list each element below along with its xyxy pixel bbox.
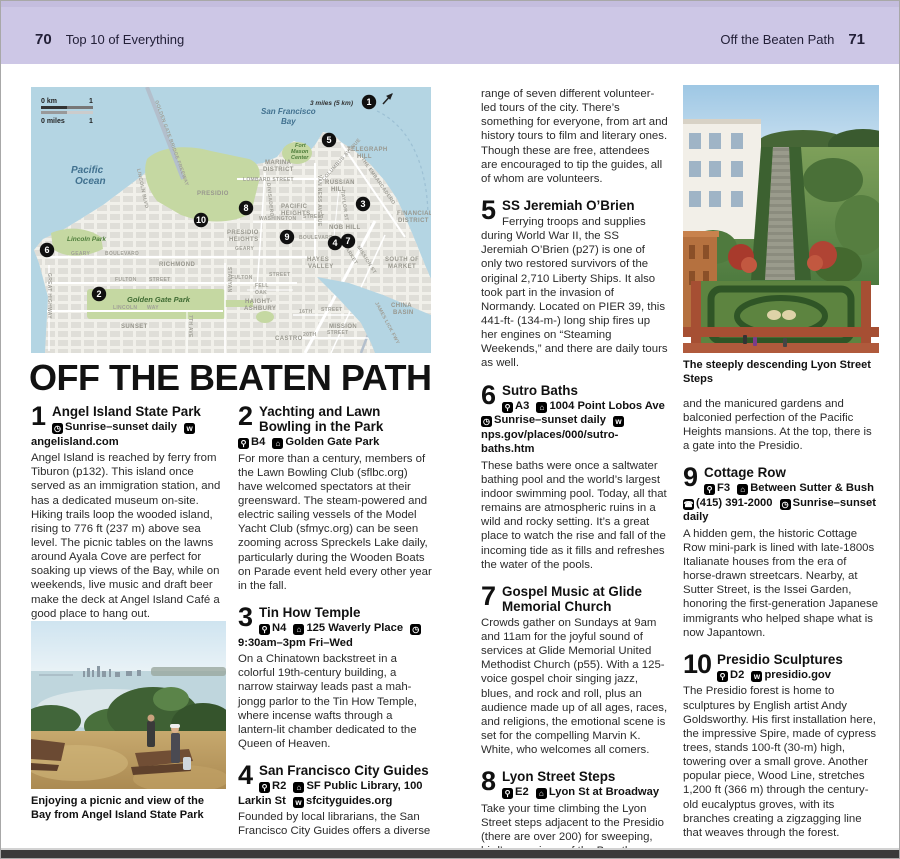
page-title: OFF THE BEATEN PATH <box>29 357 431 399</box>
map-label: 20TH <box>303 332 317 338</box>
entry-info: ⚲D2 wpresidio.gov <box>683 668 879 683</box>
map-label: DISTRICT <box>398 218 429 224</box>
entry-body: Angel Island is reached by ferry from Ti… <box>31 451 224 621</box>
entry-body: Founded by local librarians, the San Fra… <box>238 810 434 838</box>
map-pin-icon: ⚲ <box>502 402 513 413</box>
entry-body: These baths were once a saltwater bathin… <box>481 459 669 572</box>
entry-title: Lyon Street Steps <box>481 769 669 784</box>
left-header-title: Top 10 of Everything <box>66 32 185 47</box>
clock-icon: ◷ <box>780 499 791 510</box>
building-icon: ⌂ <box>293 782 304 793</box>
map-label: FINANCIAL <box>397 211 431 217</box>
map-label: Golden Gate Park <box>127 295 191 304</box>
picnic-photo <box>31 621 226 789</box>
entry-number: 3 <box>238 606 253 628</box>
map-marker-4: 4 <box>328 236 342 250</box>
entry-body: For more than a century, members of the … <box>238 452 434 593</box>
guidebook-spread: 70Top 10 of Everything Off the Beaten Pa… <box>0 0 900 859</box>
entry-number: 8 <box>481 770 496 792</box>
phone-icon: ☎ <box>683 499 694 510</box>
scale-miles-label: 0 miles <box>41 118 65 125</box>
scale-km-label: 0 km <box>41 98 57 105</box>
entry-gospel-music-glide: 7 Gospel Music at Glide Memorial Church … <box>481 584 669 757</box>
entry-body: Crowds gather on Sundays at 9am and 11am… <box>481 616 669 757</box>
web-icon: w <box>613 416 624 427</box>
map-marker-3: 3 <box>356 197 370 211</box>
entry-sf-city-guides: 4 San Francisco City Guides ⚲R2 ⌂SF Publ… <box>238 763 434 838</box>
clock-icon: ◷ <box>52 423 63 434</box>
entry-yachting-lawn-bowling: 2 Yachting and Lawn Bowling in the Park … <box>238 404 434 593</box>
map-label: DISTRICT <box>263 167 294 173</box>
clock-icon: ◷ <box>481 416 492 427</box>
angel-island-photo-block: Enjoying a picnic and view of the Bay fr… <box>31 621 226 833</box>
entry-presidio-sculptures: 10 Presidio Sculptures ⚲D2 wpresidio.gov… <box>683 652 879 840</box>
svg-text:6: 6 <box>44 245 49 255</box>
entry-lyon-street-steps: 8 Lyon Street Steps ⚲E2 ⌂Lyon St at Broa… <box>481 769 669 859</box>
entry-info: ⚲B4 ⌂Golden Gate Park <box>238 435 434 450</box>
map-marker-6: 6 <box>40 243 54 257</box>
entry-number: 2 <box>238 405 253 427</box>
scale-miles-value: 1 <box>89 118 93 125</box>
svg-text:5: 5 <box>326 135 331 145</box>
map-label: PACIFIC <box>281 204 308 210</box>
map-label: MARKET <box>388 264 416 270</box>
entry-number: 7 <box>481 585 496 607</box>
map-marker-1: 1 <box>362 95 376 109</box>
left-running-head: 70Top 10 of Everything <box>35 31 184 48</box>
entry-ss-jeremiah-obrien: 5 SS Jeremiah O’Brien Ferrying troops an… <box>481 198 669 371</box>
map-label: HEIGHTS <box>229 237 258 243</box>
svg-text:2: 2 <box>96 289 101 299</box>
map-svg: 0 km 1 0 miles 1 PacificOceanSan Francis… <box>31 87 431 353</box>
map-label: PRESIDIO <box>227 230 259 236</box>
entry-number: 9 <box>683 466 698 488</box>
map-label: Bay <box>281 117 296 126</box>
map-label: PRESIDIO <box>197 191 229 197</box>
entry-number: 5 <box>481 199 496 221</box>
map-pin-icon: ⚲ <box>259 782 270 793</box>
map-pin-icon: ⚲ <box>502 788 513 799</box>
building-icon: ⌂ <box>536 788 547 799</box>
map-label: STREET <box>149 277 171 283</box>
right-header-title: Off the Beaten Path <box>720 32 834 47</box>
map-label: SOUTH OF <box>385 257 419 263</box>
map-label: HAYES <box>307 257 329 263</box>
svg-text:1: 1 <box>366 97 371 107</box>
entry-info: ⚲N4 ⌂125 Waverly Place ◷9:30am–3pm Fri–W… <box>238 621 434 650</box>
column-2: 2 Yachting and Lawn Bowling in the Park … <box>238 404 434 850</box>
map-pin-icon: ⚲ <box>704 484 715 495</box>
map-label: STREET <box>303 214 325 220</box>
entry-body: A hidden gem, the historic Cottage Row m… <box>683 527 879 640</box>
entry-title: Sutro Baths <box>481 383 669 398</box>
entry-title: Gospel Music at Glide Memorial Church <box>481 584 669 614</box>
map-label: ASHBURY <box>244 306 276 312</box>
map-label: LINCOLN <box>113 305 137 311</box>
clock-icon: ◷ <box>410 624 421 635</box>
map-pin-icon: ⚲ <box>717 671 728 682</box>
entry-title: Yachting and Lawn Bowling in the Park <box>238 404 434 434</box>
building-icon: ⌂ <box>737 484 748 495</box>
scale-km-value: 1 <box>89 98 93 105</box>
page-header: 70Top 10 of Everything Off the Beaten Pa… <box>1 1 899 64</box>
entry-cottage-row: 9 Cottage Row ⚲F3 ⌂Between Sutter & Bush… <box>683 465 879 640</box>
entry-body: The Presidio forest is home to sculpture… <box>683 684 879 840</box>
map-label: GEARY <box>71 251 90 257</box>
map-label: RUSSIAN <box>325 180 355 186</box>
lyon-steps-photo <box>683 85 879 353</box>
san-francisco-map: 0 km 1 0 miles 1 PacificOceanSan Francis… <box>31 87 431 353</box>
map-label: STREET <box>327 330 349 336</box>
map-label: FELL <box>255 283 269 289</box>
map-label: 16TH <box>299 309 313 315</box>
entry-info: ⚲R2 ⌂SF Public Library, 100 Larkin St ws… <box>238 779 434 808</box>
entry-tin-how-temple: 3 Tin How Temple ⚲N4 ⌂125 Waverly Place … <box>238 605 434 751</box>
left-page-number: 70 <box>35 31 52 48</box>
lyon-caption: The steeply descending Lyon Street Steps <box>683 359 879 387</box>
entry-sf-city-guides-continued: range of seven different volunteer-led t… <box>481 87 669 186</box>
entry-title: Presidio Sculptures <box>683 652 879 667</box>
building-icon: ⌂ <box>536 402 547 413</box>
entry-number: 1 <box>31 405 46 427</box>
web-icon: w <box>184 423 195 434</box>
entry-title: SS Jeremiah O’Brien <box>481 198 669 213</box>
svg-text:7: 7 <box>345 236 350 246</box>
map-label: OAK <box>255 290 267 296</box>
map-label: 3 miles (5 km) <box>310 100 353 107</box>
web-icon: w <box>293 797 304 808</box>
map-label: BASIN <box>393 310 414 316</box>
column-middle: range of seven different volunteer-led t… <box>481 85 669 859</box>
golden-gate-park <box>87 289 225 319</box>
entry-number: 6 <box>481 384 496 406</box>
entry-title: Tin How Temple <box>238 605 434 620</box>
svg-text:9: 9 <box>284 232 289 242</box>
map-marker-2: 2 <box>92 287 106 301</box>
map-label: STREET <box>321 307 343 313</box>
map-marker-10: 10 <box>194 213 208 227</box>
right-running-head: Off the Beaten Path71 <box>720 31 865 48</box>
map-label: San Francisco <box>261 107 316 116</box>
map-marker-9: 9 <box>280 230 294 244</box>
map-label: BOULEVARD <box>299 235 333 241</box>
entry-number: 10 <box>683 653 711 675</box>
svg-text:3: 3 <box>360 199 365 209</box>
buena-vista-park <box>256 311 274 323</box>
entry-title: Cottage Row <box>683 465 879 480</box>
map-label: Center <box>291 155 309 161</box>
entry-info: ⚲A3 ⌂1004 Point Lobos Ave ◷Sunrise–sunse… <box>481 399 669 457</box>
map-label: CHINA <box>391 303 412 309</box>
entry-number: 4 <box>238 764 253 786</box>
svg-text:4: 4 <box>332 238 337 248</box>
map-label: STREET <box>269 272 291 278</box>
map-pin-icon: ⚲ <box>238 438 249 449</box>
map-marker-7: 7 <box>341 234 355 248</box>
map-label: BOULEVARD <box>105 251 139 257</box>
map-label: WASHINGTON <box>259 216 296 222</box>
building-icon: ⌂ <box>293 624 304 635</box>
map-label: FULTON <box>115 277 137 283</box>
entry-info: ⚲E2 ⌂Lyon St at Broadway <box>481 785 669 800</box>
entry-info: ⚲F3 ⌂Between Sutter & Bush ☎(415) 391-20… <box>683 481 879 525</box>
entry-info: ◷Sunrise–sunset daily wangelisland.com <box>31 420 224 449</box>
building-icon: ⌂ <box>272 438 283 449</box>
map-label: STANYAN <box>226 267 232 293</box>
column-right: The steeply descending Lyon Street Steps… <box>683 85 879 852</box>
column-1: 1 Angel Island State Park ◷Sunrise–sunse… <box>31 404 224 633</box>
map-label: WAY <box>147 305 159 311</box>
map-marker-8: 8 <box>239 201 253 215</box>
entry-body: Ferrying troops and supplies during Worl… <box>481 215 669 371</box>
map-label: Ocean <box>75 176 106 187</box>
right-page-number: 71 <box>848 31 865 48</box>
map-label: HAIGHT- <box>245 299 272 305</box>
svg-text:10: 10 <box>196 215 206 225</box>
map-label: VALLEY <box>308 264 334 270</box>
svg-text:8: 8 <box>243 203 248 213</box>
web-icon: w <box>751 671 762 682</box>
entry-body: On a Chinatown backstreet in a colorful … <box>238 652 434 751</box>
map-label: GREAT HIGHWAY <box>46 273 52 319</box>
map-label: MARINA <box>265 160 292 166</box>
map-label: SUNSET <box>121 324 148 330</box>
map-label: CASTRO <box>275 336 303 342</box>
entry-angel-island: 1 Angel Island State Park ◷Sunrise–sunse… <box>31 404 224 621</box>
entry-sutro-baths: 6 Sutro Baths ⚲A3 ⌂1004 Point Lobos Ave … <box>481 383 669 572</box>
picnic-caption: Enjoying a picnic and view of the Bay fr… <box>31 795 226 823</box>
map-label: RICHMOND <box>159 262 195 268</box>
entry-title: Angel Island State Park <box>31 404 224 419</box>
map-label: Pacific <box>71 165 104 176</box>
map-label: NOB HILL <box>329 225 361 231</box>
page-bottom-edge <box>1 848 899 858</box>
entry-title: San Francisco City Guides <box>238 763 434 778</box>
map-label: FULTON <box>231 275 253 281</box>
map-pin-icon: ⚲ <box>259 624 270 635</box>
map-marker-5: 5 <box>322 133 336 147</box>
entry-lyon-steps-continued: and the manicured gardens and balconied … <box>683 397 879 454</box>
map-label: GEARY <box>235 246 254 252</box>
map-label: 7TH AVE <box>187 315 193 338</box>
map-label: Lincoln Park <box>67 236 106 243</box>
